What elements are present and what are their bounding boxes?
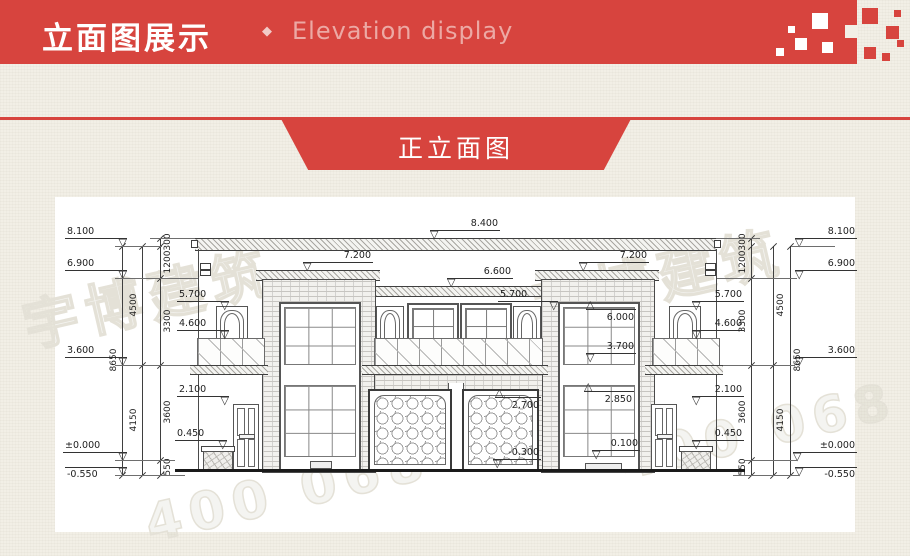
elevation-marker: -0.550▽ bbox=[795, 456, 857, 468]
elevation-marker: 8.100▽ bbox=[65, 227, 127, 239]
dim-value: 300 bbox=[738, 233, 748, 250]
elevation-value: 0.450 bbox=[715, 428, 742, 439]
elevation-value: ±0.000 bbox=[820, 440, 855, 451]
elevation-marker: 6.000△ bbox=[586, 309, 636, 321]
level-triangle-icon: ▽ bbox=[579, 262, 587, 272]
level-triangle-icon: ▽ bbox=[303, 262, 311, 272]
section-title: 正立面图 bbox=[280, 129, 632, 165]
elevation-marker: 6.900▽ bbox=[795, 259, 857, 271]
elevation-value: 5.700 bbox=[500, 289, 527, 300]
level-triangle-icon: △ bbox=[495, 388, 503, 398]
dim-extension-line bbox=[115, 365, 190, 366]
pixel-dissolve bbox=[894, 10, 901, 17]
level-triangle-icon: ▽ bbox=[493, 459, 501, 469]
dim-extension-line bbox=[733, 475, 799, 476]
dim-extension-line bbox=[115, 278, 198, 279]
elevation-value: 5.700 bbox=[715, 289, 742, 300]
elevation-value: 7.200 bbox=[620, 250, 647, 261]
level-triangle-icon: ▽ bbox=[447, 278, 455, 288]
dim-chain-line bbox=[122, 246, 123, 475]
dim-value: 300 bbox=[163, 233, 173, 250]
section-ribbon: 正立面图 bbox=[280, 117, 632, 170]
elevation-marker: 0.100▽ bbox=[592, 439, 640, 451]
header-banner: 立面图展示 ◆ Elevation display bbox=[0, 0, 857, 64]
page-subtitle: Elevation display bbox=[292, 17, 513, 45]
level-triangle-icon: ▽ bbox=[219, 440, 227, 450]
elevation-marker: 8.100▽ bbox=[795, 227, 857, 239]
elevation-value: 3.600 bbox=[67, 345, 94, 356]
dim-value: 4500 bbox=[776, 294, 786, 317]
level-triangle-icon: ▽ bbox=[692, 396, 700, 406]
elevation-value: 5.700 bbox=[179, 289, 206, 300]
elevation-marker: 5.700▽ bbox=[177, 290, 229, 302]
level-triangle-icon: ▽ bbox=[692, 440, 700, 450]
elevation-value: -0.300 bbox=[508, 447, 539, 458]
elevation-value: 2.850 bbox=[605, 394, 632, 405]
elevation-marker: 5.700▽ bbox=[692, 290, 744, 302]
elevation-value: 2.700 bbox=[512, 400, 539, 411]
elevation-value: 2.100 bbox=[715, 384, 742, 395]
elevation-marker: 3.700▽ bbox=[586, 342, 636, 354]
level-triangle-icon: ▽ bbox=[586, 353, 594, 363]
pixel-dissolve bbox=[897, 40, 904, 47]
level-triangle-icon: ▽ bbox=[221, 301, 229, 311]
elevation-marker: 5.700▽ bbox=[498, 290, 558, 302]
dim-value: 4150 bbox=[776, 409, 786, 432]
level-triangle-icon: ▽ bbox=[592, 450, 600, 460]
dim-value: 3600 bbox=[163, 401, 173, 424]
level-triangle-icon: △ bbox=[586, 300, 594, 310]
dim-chain-line bbox=[773, 246, 774, 475]
dim-extension-line bbox=[115, 460, 175, 461]
elevation-value: 6.900 bbox=[828, 258, 855, 269]
level-triangle-icon: ▽ bbox=[550, 301, 558, 311]
dim-value: 3600 bbox=[738, 401, 748, 424]
pixel-dissolve bbox=[882, 53, 890, 61]
elevation-marker: 6.600▽ bbox=[447, 267, 513, 279]
dim-value: 1200 bbox=[163, 251, 173, 274]
pixel-dissolve bbox=[776, 48, 784, 56]
elevation-marker: 3.600▽ bbox=[795, 346, 857, 358]
dim-extension-line bbox=[717, 278, 797, 279]
elevation-value: 3.700 bbox=[607, 341, 634, 352]
pixel-dissolve bbox=[886, 26, 899, 39]
dim-extension-line bbox=[716, 238, 760, 239]
pixel-dissolve bbox=[788, 26, 795, 33]
elevation-value: 7.200 bbox=[344, 250, 371, 261]
elevation-marker: 7.200▽ bbox=[303, 251, 373, 263]
elevation-value: 8.400 bbox=[471, 218, 498, 229]
elevation-marker: -0.300▽ bbox=[493, 448, 541, 460]
elevation-marker: -0.550▽ bbox=[65, 456, 127, 468]
dim-extension-line bbox=[745, 460, 797, 461]
elevation-marker: 6.900▽ bbox=[65, 259, 127, 271]
elevation-marker: 2.700△ bbox=[495, 397, 541, 409]
dim-chain-line bbox=[160, 238, 161, 475]
elevation-value: -0.550 bbox=[67, 469, 98, 480]
level-triangle-icon: ▽ bbox=[430, 230, 438, 240]
level-triangle-icon: ▽ bbox=[692, 330, 700, 340]
dim-chain-line bbox=[751, 238, 752, 475]
dim-value: 4150 bbox=[129, 409, 139, 432]
elevation-marker: 4.600▽ bbox=[692, 319, 744, 331]
elevation-value: 2.100 bbox=[179, 384, 206, 395]
dim-value: 8650 bbox=[793, 349, 803, 372]
dim-extension-line bbox=[723, 365, 795, 366]
dimension-annotations: 8.100▽6.900▽3.600▽±0.000▽-0.550▽5.700▽4.… bbox=[55, 197, 855, 532]
elevation-value: 6.600 bbox=[484, 266, 511, 277]
elevation-value: -0.550 bbox=[824, 469, 855, 480]
dim-value: 3300 bbox=[738, 310, 748, 333]
elevation-marker: ±0.000▽ bbox=[793, 441, 857, 453]
pixel-dissolve bbox=[845, 25, 858, 38]
level-triangle-icon: ▽ bbox=[692, 301, 700, 311]
elevation-value: ±0.000 bbox=[65, 440, 100, 451]
level-triangle-icon: ▽ bbox=[221, 330, 229, 340]
pixel-dissolve bbox=[862, 8, 878, 24]
dim-value: 1200 bbox=[738, 251, 748, 274]
elevation-value: 3.600 bbox=[828, 345, 855, 356]
pixel-dissolve bbox=[795, 38, 807, 50]
elevation-marker: 0.450▽ bbox=[175, 429, 227, 441]
level-triangle-icon: ▽ bbox=[221, 396, 229, 406]
dim-value: 8650 bbox=[109, 349, 119, 372]
elevation-value: 6.000 bbox=[607, 312, 634, 323]
elevation-value: 0.450 bbox=[177, 428, 204, 439]
elevation-marker: 2.850△ bbox=[584, 391, 634, 403]
dim-extension-line bbox=[115, 475, 185, 476]
elevation-marker: ±0.000▽ bbox=[63, 441, 127, 453]
pixel-dissolve bbox=[822, 42, 833, 53]
elevation-value: 6.900 bbox=[67, 258, 94, 269]
level-triangle-icon: △ bbox=[584, 382, 592, 392]
pixel-dissolve bbox=[812, 13, 828, 29]
elevation-value: 0.100 bbox=[611, 438, 638, 449]
pixel-dissolve bbox=[864, 47, 876, 59]
elevation-marker: 0.450▽ bbox=[692, 429, 744, 441]
dim-value: 4500 bbox=[129, 294, 139, 317]
page: 立面图展示 ◆ Elevation display 正立面图 宇博建筑 400 … bbox=[0, 0, 910, 556]
elevation-value: 8.100 bbox=[828, 226, 855, 237]
dim-chain-line bbox=[790, 246, 791, 475]
elevation-value: 8.100 bbox=[67, 226, 94, 237]
diamond-icon: ◆ bbox=[262, 24, 272, 39]
page-title: 立面图展示 bbox=[42, 13, 212, 58]
elevation-marker: 7.200▽ bbox=[579, 251, 649, 263]
elevation-value: 4.600 bbox=[179, 318, 206, 329]
drawing-panel: 8.100▽6.900▽3.600▽±0.000▽-0.550▽5.700▽4.… bbox=[55, 197, 855, 532]
elevation-marker: 2.100▽ bbox=[177, 385, 229, 397]
dim-extension-line bbox=[115, 246, 162, 247]
dim-chain-line bbox=[142, 246, 143, 475]
elevation-marker: 4.600▽ bbox=[177, 319, 229, 331]
dim-extension-line bbox=[150, 238, 195, 239]
dim-value: 3300 bbox=[163, 310, 173, 333]
elevation-marker: 8.400▽ bbox=[430, 219, 500, 231]
dim-extension-line bbox=[791, 246, 835, 247]
elevation-marker: 2.100▽ bbox=[692, 385, 744, 397]
